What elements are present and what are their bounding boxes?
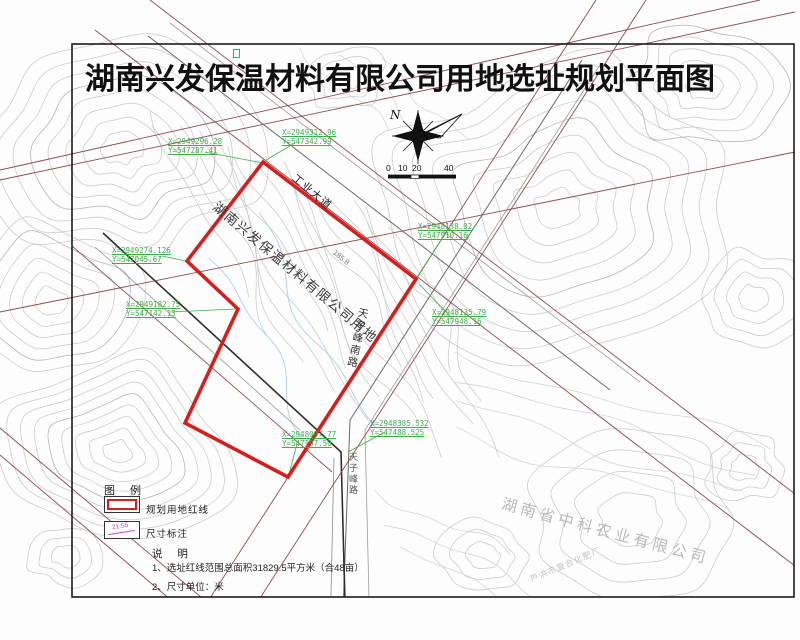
drawing-title-company: 湖南兴发保温材料有限公司用地 <box>85 63 505 96</box>
legend-symbol-redline <box>104 496 140 513</box>
coord-x: X=2949182.75 <box>126 300 180 309</box>
scale-bar <box>388 175 456 179</box>
coord-y: Y=547342.99 <box>282 137 336 146</box>
coordinate-label: X=2949274.126 Y=547045.67 <box>112 246 171 264</box>
scale-tick-10: 10 <box>398 163 407 173</box>
coordinate-label: X=2949182.75 Y=547142.13 <box>126 300 180 318</box>
coordinate-label: X=2948135.79 Y=547948.16 <box>432 308 486 326</box>
coordinate-label: X=2949312.96 Y=547342.99 <box>282 128 336 146</box>
notes-header: 说 明 <box>152 546 194 561</box>
coord-x: X=2949312.96 <box>282 128 336 137</box>
coord-y: Y=547142.13 <box>126 309 180 318</box>
legend-label-dimension: 尺寸标注 <box>146 526 188 540</box>
drawing-title: 湖南兴发保温材料有限公司用地选址规划平面图 <box>85 54 715 98</box>
coord-y: Y=547910.16 <box>418 231 472 240</box>
road-label-tianzifeng: 天子峰路 <box>347 452 360 496</box>
coord-x: X=2948097.77 <box>282 430 336 439</box>
coordinate-label: X=2948138.02 Y=547910.16 <box>418 222 472 240</box>
site-plan-page: 湖南兴发保温材料有限公司用地选址规划平面图 N 0 10 20 40 湖南兴发保… <box>0 0 800 640</box>
drawing-title-type: 选址规划平面图 <box>505 63 715 96</box>
coord-y: Y=547287.41 <box>168 146 222 155</box>
legend-label-redline: 规划用地红线 <box>146 502 209 516</box>
legend-symbol-dimension: 21.55 <box>104 521 140 539</box>
coord-y: Y=547488.525 <box>370 428 429 437</box>
coord-y: Y=547045.67 <box>112 255 171 264</box>
coord-x: X=2949296.28 <box>168 137 222 146</box>
coord-x: X=2948385.532 <box>370 419 429 428</box>
coord-y: Y=547948.16 <box>432 317 486 326</box>
scale-tick-20: 20 <box>412 163 421 173</box>
coord-x: X=2948138.02 <box>418 222 472 231</box>
scale-tick-0: 0 <box>386 163 391 173</box>
coordinate-label: X=2949296.28 Y=547287.41 <box>168 137 222 155</box>
note-item-2: 2、尺寸单位：米 <box>152 579 224 593</box>
dimension-value: 21.55 <box>112 522 129 531</box>
scale-tick-40: 40 <box>444 163 453 173</box>
coordinate-label: X=2948385.532 Y=547488.525 <box>370 419 429 437</box>
note-item-1: 1、选址红线范围总面积31829.5平方米（合48亩） <box>152 560 364 574</box>
coord-x: X=2948135.79 <box>432 308 486 317</box>
north-arrow-icon <box>392 110 462 164</box>
coordinate-label: X=2948097.77 Y=547197.50 <box>282 430 336 448</box>
coord-y: Y=547197.50 <box>282 439 336 448</box>
redline-swatch <box>107 499 137 510</box>
coord-x: X=2949274.126 <box>112 246 171 255</box>
north-label: N <box>390 108 401 122</box>
